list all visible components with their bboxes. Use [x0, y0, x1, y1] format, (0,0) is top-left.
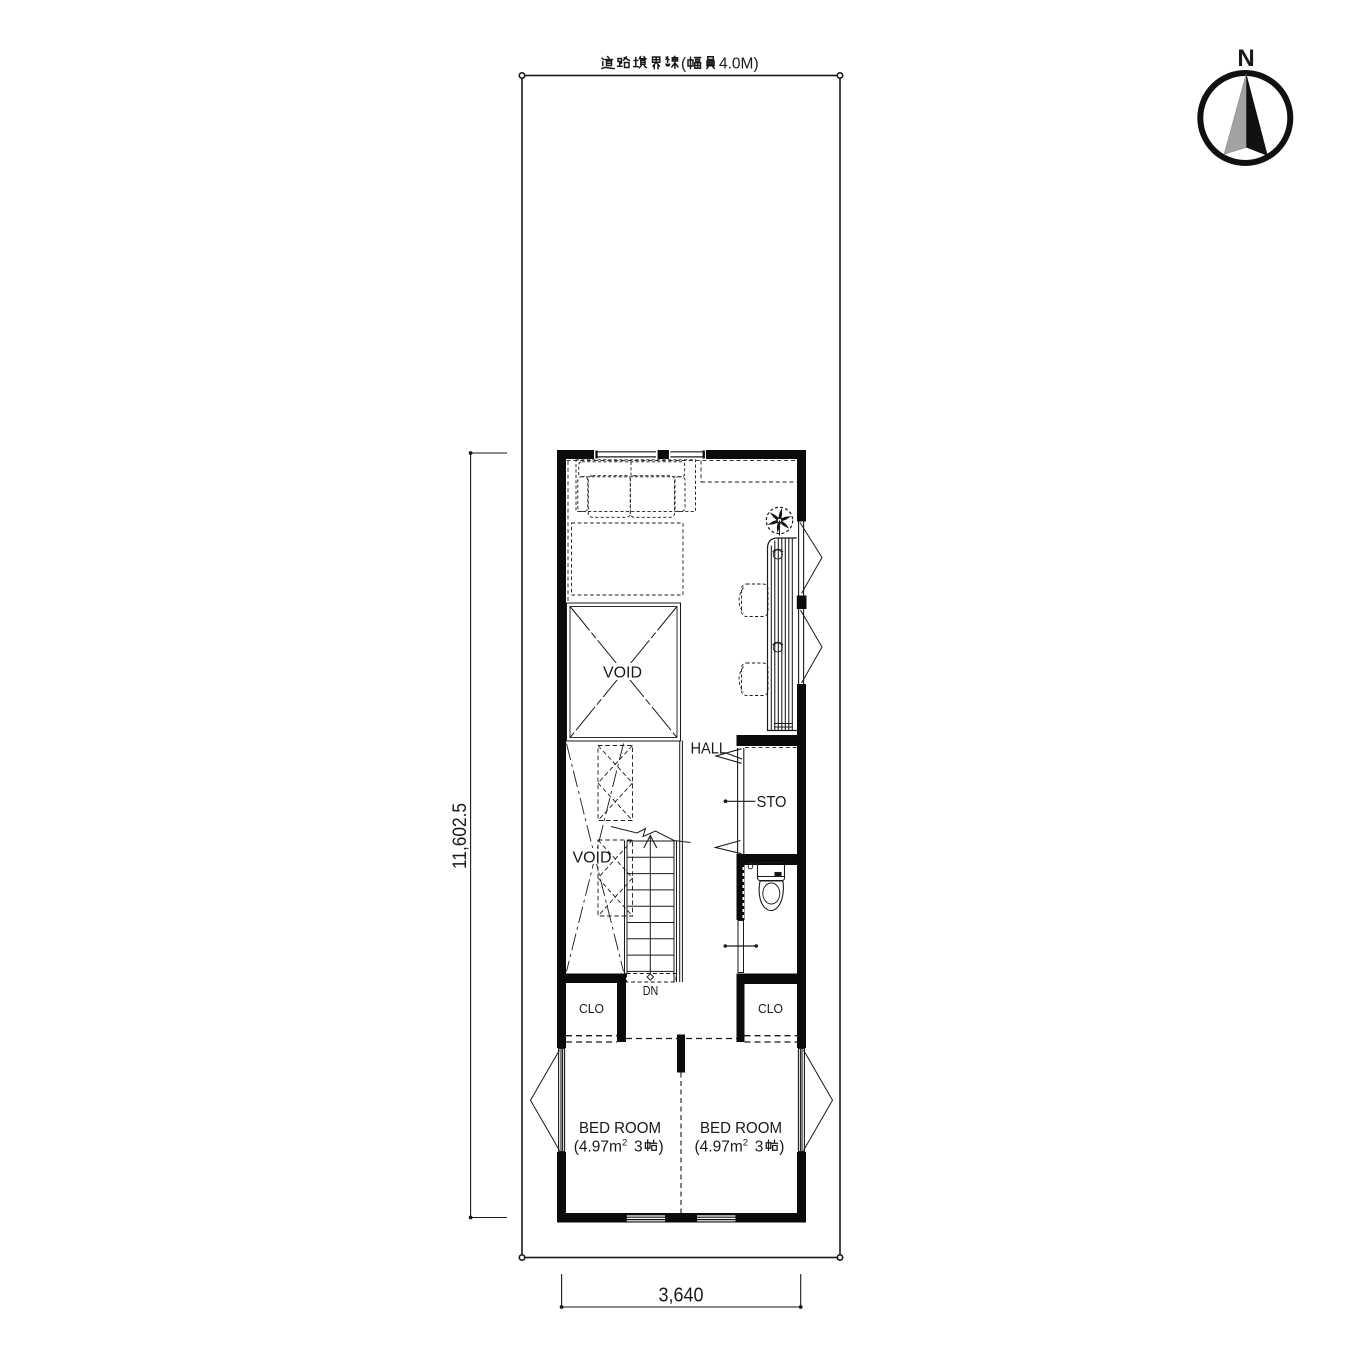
svg-text:DN: DN	[643, 984, 659, 998]
svg-text:2: 2	[622, 1138, 627, 1149]
svg-text:(: (	[681, 56, 687, 73]
svg-text:CLO: CLO	[758, 1001, 783, 1016]
svg-text:): )	[779, 1139, 784, 1156]
svg-text:11,602.5: 11,602.5	[449, 803, 471, 869]
svg-text:CLO: CLO	[579, 1001, 604, 1016]
svg-text:STO: STO	[757, 794, 787, 811]
svg-text:): )	[659, 1139, 664, 1156]
svg-text:2: 2	[743, 1138, 748, 1149]
svg-text:(4.97m: (4.97m	[574, 1139, 622, 1156]
svg-text:VOID: VOID	[572, 850, 611, 867]
svg-text:3: 3	[755, 1139, 764, 1156]
svg-text:BED ROOM: BED ROOM	[579, 1120, 661, 1137]
svg-text:3: 3	[634, 1139, 643, 1156]
svg-text:BED ROOM: BED ROOM	[700, 1120, 782, 1137]
svg-text:4.0M): 4.0M)	[719, 56, 759, 73]
svg-text:N: N	[1237, 45, 1254, 72]
svg-text:(4.97m: (4.97m	[695, 1139, 743, 1156]
svg-text:3,640: 3,640	[659, 1285, 704, 1307]
svg-text:VOID: VOID	[603, 665, 642, 682]
